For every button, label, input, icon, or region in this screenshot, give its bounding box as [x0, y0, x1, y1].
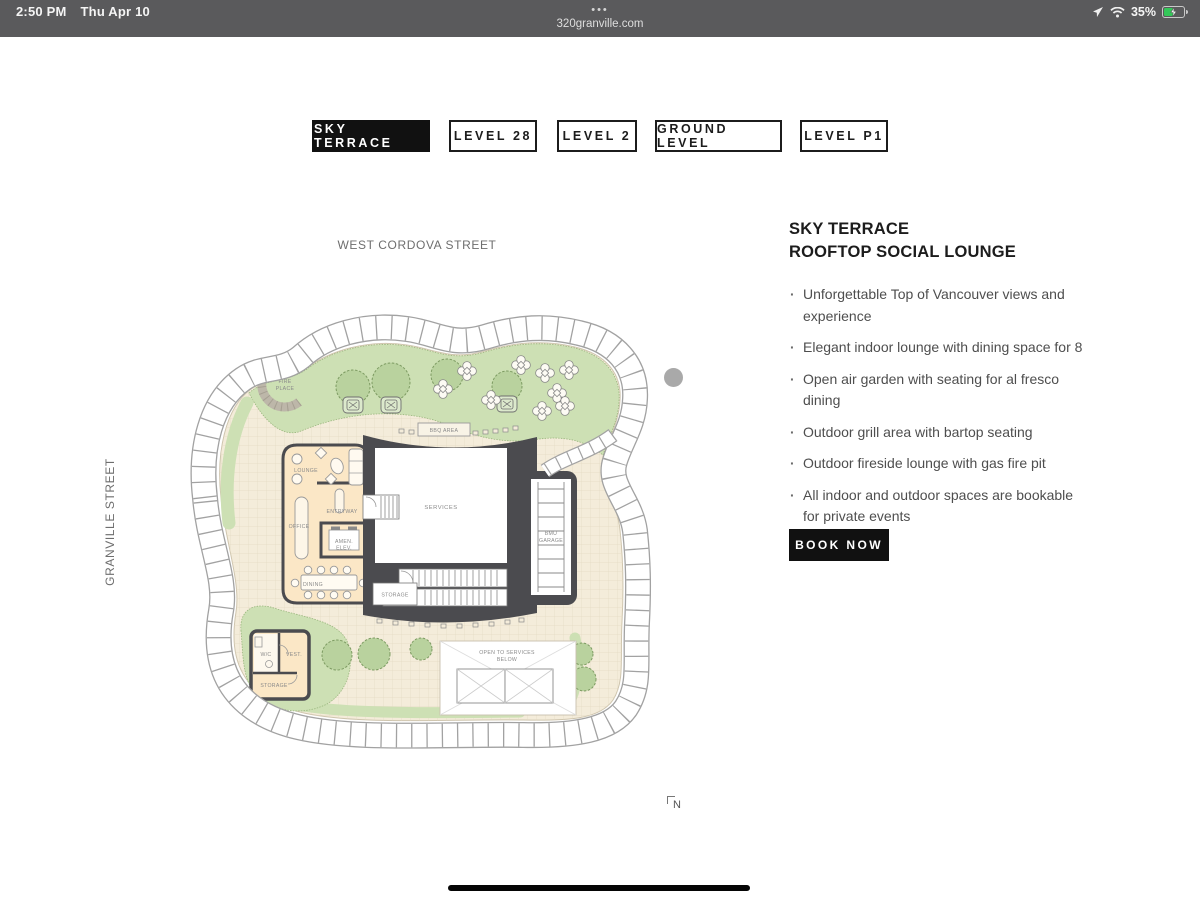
lounge-label: LOUNGE [294, 468, 318, 474]
floor-plan-svg: FIRE PLACE LOUNGE ENTRYWAY OFF [185, 283, 665, 758]
vest-label: VEST. [286, 652, 302, 658]
wc-label: W/C [261, 652, 272, 658]
page-title: SKY TERRACE ROOFTOP SOCIAL LOUNGE [789, 218, 1099, 264]
tab-sky-terrace[interactable]: SKY TERRACE [312, 120, 430, 152]
feature-list: Unforgettable Top of Vancouver views and… [789, 284, 1091, 528]
book-now-button[interactable]: BOOK NOW [789, 529, 889, 561]
battery-percent-label: 35% [1131, 5, 1156, 19]
indoor-rooms: LOUNGE ENTRYWAY OFFICE AMEN. ELEV. DININ… [283, 445, 367, 603]
location-icon [1092, 6, 1104, 18]
floor-plan: FIRE PLACE LOUNGE ENTRYWAY OFF [185, 283, 665, 758]
plan-hotspot-dot[interactable] [664, 368, 683, 387]
list-item: Open air garden with seating for al fres… [789, 369, 1091, 412]
status-bar: 2:50 PMThu Apr 10 ••• 320granville.com 3… [0, 0, 1200, 37]
open-services-label-2: BELOW [497, 657, 517, 663]
details-panel: SKY TERRACE ROOFTOP SOCIAL LOUNGE Unforg… [789, 218, 1099, 538]
url-label[interactable]: 320granville.com [0, 18, 1200, 30]
open-services-label-1: OPEN TO SERVICES [479, 650, 535, 656]
list-item: Outdoor fireside lounge with gas fire pi… [789, 453, 1091, 475]
bmu-garage-label-1: BMU [545, 531, 557, 537]
street-label-west-cordova: WEST CORDOVA STREET [292, 238, 542, 252]
amen-elev-label-2: ELEV. [336, 546, 352, 552]
bmu-garage-label-2: GARAGE [539, 538, 563, 544]
tab-level-28[interactable]: LEVEL 28 [449, 120, 537, 152]
tab-ground-level[interactable]: GROUND LEVEL [655, 120, 782, 152]
entryway-label: ENTRYWAY [326, 509, 357, 515]
battery-charging-icon [1162, 6, 1188, 18]
storage-core-label: STORAGE [381, 593, 409, 599]
street-label-granville: GRANVILLE STREET [103, 392, 117, 652]
dining-label: DINING [303, 582, 323, 588]
tab-level-2[interactable]: LEVEL 2 [557, 120, 637, 152]
bbq-area-label: BBQ AREA [430, 428, 459, 434]
wc-block: W/C VEST. STORAGE [251, 631, 309, 699]
office-label: OFFICE [289, 524, 310, 530]
list-item: Unforgettable Top of Vancouver views and… [789, 284, 1091, 327]
list-item: All indoor and outdoor spaces are bookab… [789, 485, 1091, 528]
tab-level-p1[interactable]: LEVEL P1 [800, 120, 888, 152]
wifi-icon [1110, 7, 1125, 18]
title-line-2: ROOFTOP SOCIAL LOUNGE [789, 243, 1016, 261]
title-line-1: SKY TERRACE [789, 220, 909, 238]
home-indicator[interactable] [448, 885, 750, 891]
services-label: SERVICES [424, 505, 457, 511]
open-to-services: OPEN TO SERVICES BELOW [440, 641, 576, 715]
fireplace-label-2: PLACE [276, 386, 295, 392]
north-indicator: N [667, 796, 687, 816]
multitask-dots-icon[interactable]: ••• [0, 4, 1200, 16]
list-item: Elegant indoor lounge with dining space … [789, 337, 1091, 359]
storage-wc-label: STORAGE [260, 683, 288, 689]
north-label: N [673, 799, 681, 811]
amen-elev-label-1: AMEN. [335, 539, 353, 545]
list-item: Outdoor grill area with bartop seating [789, 422, 1091, 444]
